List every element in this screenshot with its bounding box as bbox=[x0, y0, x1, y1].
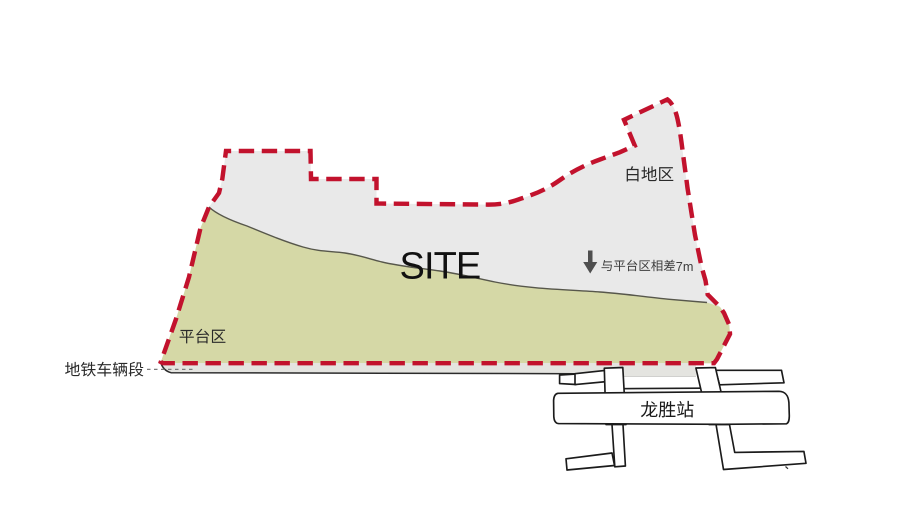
svg-text:SITE: SITE bbox=[400, 246, 481, 288]
svg-text:7m: 7m bbox=[676, 260, 694, 274]
